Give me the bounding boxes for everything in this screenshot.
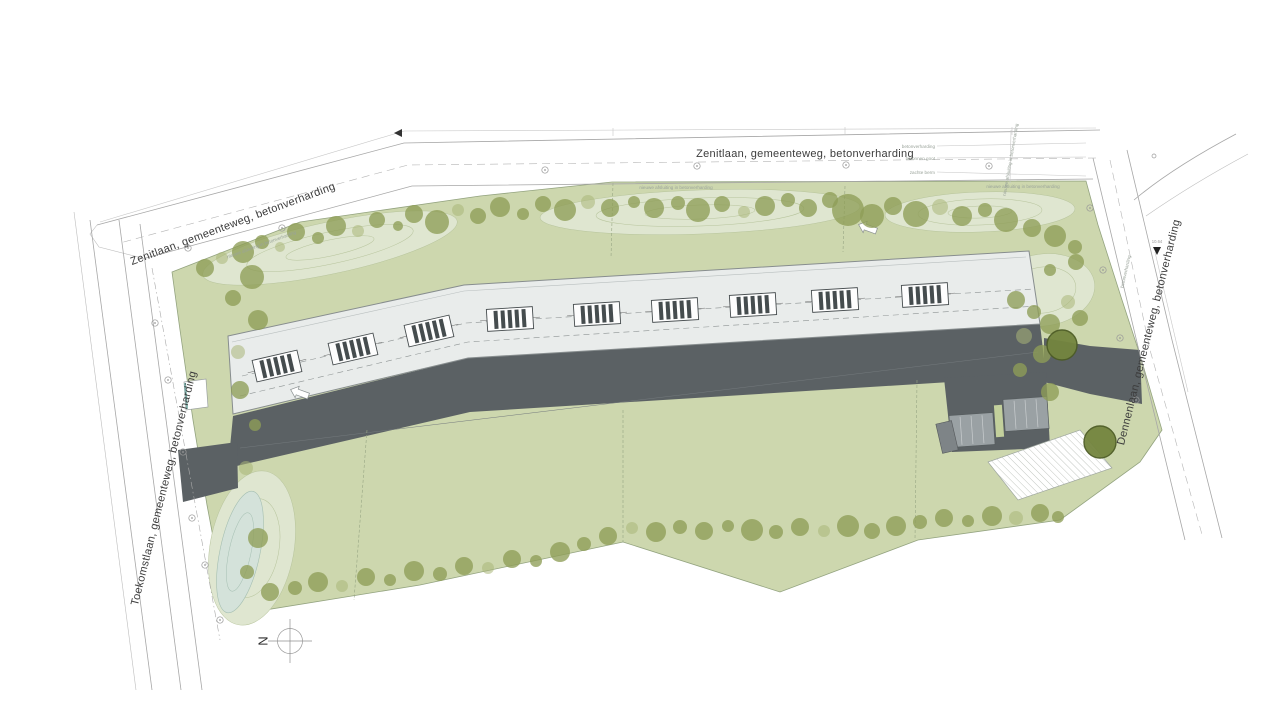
tree: [239, 461, 253, 475]
tree: [714, 196, 730, 212]
tree: [671, 196, 685, 210]
tree: [470, 208, 486, 224]
tree: [490, 197, 510, 217]
tree: [673, 520, 687, 534]
tree: [791, 518, 809, 536]
street-lamp-icon: [986, 163, 992, 169]
tree: [601, 199, 619, 217]
road-label-zenitlaan-top: Zenitlaan, gemeenteweg, betonverharding: [696, 148, 914, 160]
tree: [433, 567, 447, 581]
north-label: N: [256, 636, 271, 645]
tree: [932, 199, 948, 215]
tree: [231, 381, 249, 399]
tree: [962, 515, 974, 527]
tree: [646, 522, 666, 542]
site-plan-drawing: Zenitlaan, gemeenteweg, betonverharding …: [0, 0, 1280, 727]
tree: [741, 519, 763, 541]
tree: [769, 525, 783, 539]
tree: [599, 527, 617, 545]
tree: [994, 208, 1018, 232]
annotation-betonnen-goot: betonnen goot: [906, 156, 936, 161]
tree: [196, 259, 214, 277]
tree: [384, 574, 396, 586]
tree: [357, 568, 375, 586]
tree: [288, 581, 302, 595]
level-marker-value: 10.64: [1152, 239, 1163, 244]
tree: [886, 516, 906, 536]
tree: [1027, 305, 1041, 319]
tree: [231, 345, 245, 359]
tree: [240, 565, 254, 579]
tree: [1044, 264, 1056, 276]
skylight: [894, 282, 955, 308]
tree: [275, 242, 285, 252]
tree: [369, 212, 385, 228]
tree: [1016, 328, 1032, 344]
tree: [935, 509, 953, 527]
tree: [554, 199, 576, 221]
tree: [405, 205, 423, 223]
street-lamp-icon: [217, 617, 223, 623]
tree: [1068, 254, 1084, 270]
tree: [482, 562, 494, 574]
street-lamp-icon: [152, 320, 158, 326]
tree: [425, 210, 449, 234]
tree: [755, 196, 775, 216]
tree: [695, 522, 713, 540]
tree: [1007, 291, 1025, 309]
tree: [952, 206, 972, 226]
tree: [837, 515, 859, 537]
tree: [530, 555, 542, 567]
skylight: [566, 301, 627, 327]
skylight: [804, 287, 865, 313]
tree: [393, 221, 403, 231]
tree: [1023, 219, 1041, 237]
street-lamp-icon: [843, 162, 849, 168]
tree: [1041, 383, 1059, 401]
tree: [799, 199, 817, 217]
tree: [336, 580, 348, 592]
tree: [1044, 225, 1066, 247]
annotation-betonverharding: betonverharding: [1119, 254, 1131, 288]
north-arrow: N: [256, 619, 313, 663]
tree: [577, 537, 591, 551]
tree: [903, 201, 929, 227]
tree: [832, 194, 864, 226]
tree: [864, 523, 880, 539]
tree: [686, 198, 710, 222]
street-lamp-icon: [542, 167, 548, 173]
tree: [860, 204, 884, 228]
street-lamp-icon: [165, 377, 171, 383]
tree: [644, 198, 664, 218]
tree: [308, 572, 328, 592]
annotation-zachte-berm: zachte berm: [910, 170, 935, 175]
tree: [913, 515, 927, 529]
annotation-betonverharding: betonverharding: [902, 144, 936, 149]
tree: [503, 550, 521, 568]
tree: [1013, 363, 1027, 377]
tree: [249, 419, 261, 431]
skylight: [644, 297, 705, 323]
tree: [312, 232, 324, 244]
tree: [581, 195, 595, 209]
tree: [1072, 310, 1088, 326]
tree: [982, 506, 1002, 526]
tree: [248, 310, 268, 330]
tree: [1061, 295, 1075, 309]
tree: [884, 197, 902, 215]
large-tree: [1084, 426, 1116, 458]
tree: [781, 193, 795, 207]
annotation-nieuwe-afsluiting: nieuwe afsluiting in betonverharding: [639, 185, 713, 190]
tree: [738, 206, 750, 218]
tree: [722, 520, 734, 532]
tree: [535, 196, 551, 212]
tree: [1052, 511, 1064, 523]
tree: [517, 208, 529, 220]
tree: [261, 583, 279, 601]
tree: [352, 225, 364, 237]
tree: [1068, 240, 1082, 254]
large-tree: [1047, 330, 1077, 360]
street-lamp-icon: [189, 515, 195, 521]
tree: [978, 203, 992, 217]
skylight: [479, 306, 540, 332]
tree: [452, 204, 464, 216]
tree: [455, 557, 473, 575]
tree: [818, 525, 830, 537]
tree: [404, 561, 424, 581]
annotation-nieuwe-afsluiting: nieuwe afsluiting in betonverharding: [986, 184, 1060, 189]
site-plan-canvas: Zenitlaan, gemeenteweg, betonverharding …: [0, 0, 1280, 727]
tree: [240, 265, 264, 289]
street-lamp-icon: [694, 163, 700, 169]
tree: [626, 522, 638, 534]
tree: [225, 290, 241, 306]
tree: [326, 216, 346, 236]
tree: [1009, 511, 1023, 525]
tree: [248, 528, 268, 548]
street-lamp-icon: [202, 562, 208, 568]
tree: [550, 542, 570, 562]
skylight: [722, 292, 783, 318]
tree: [628, 196, 640, 208]
tree: [1031, 504, 1049, 522]
